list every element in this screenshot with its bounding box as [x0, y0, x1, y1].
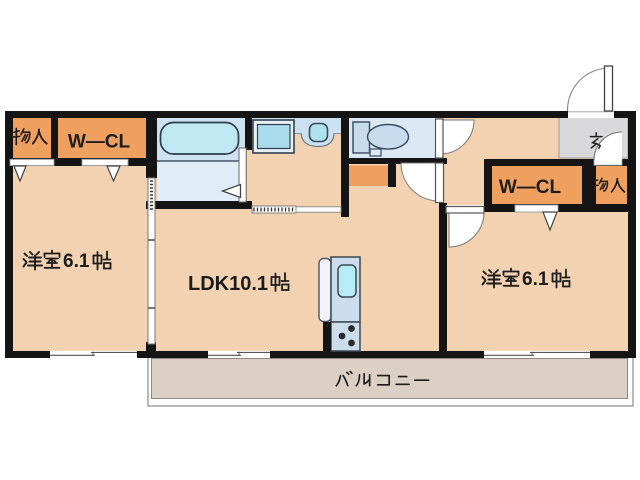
svg-text:6.1: 6.1	[63, 251, 90, 272]
svg-text:6.1: 6.1	[522, 269, 549, 290]
svg-text:W—CL: W—CL	[68, 132, 131, 153]
svg-text:W—CL: W—CL	[499, 177, 562, 198]
svg-text:LDK10.1: LDK10.1	[188, 273, 268, 295]
